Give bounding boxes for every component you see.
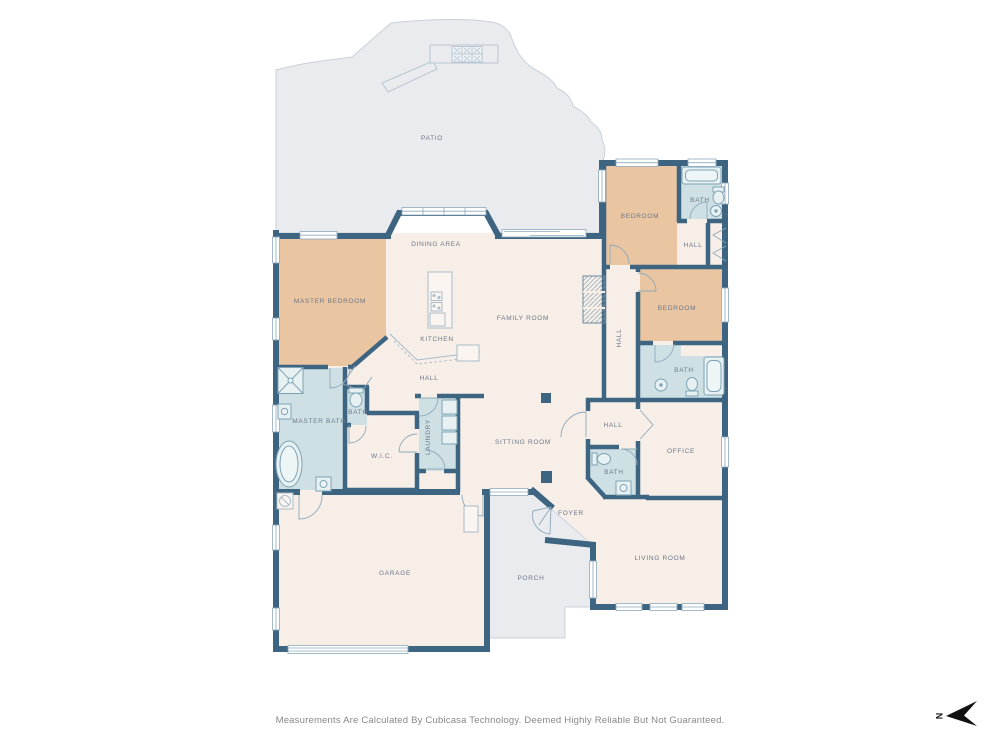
north-arrow-icon: N [934,701,977,726]
label-master-bedroom: MASTER BEDROOM [294,298,366,305]
label-family-room: FAMILY ROOM [497,315,549,322]
kitchen-island [428,272,452,328]
toilet-icon [713,187,724,204]
label-bath-small: BATH [348,409,368,416]
shower-icon [278,368,303,394]
wall-stub [541,393,551,403]
label-patio: PATIO [421,135,443,142]
label-hall-center: HALL [419,375,438,382]
toilet-icon [592,453,611,465]
footer-disclaimer: Measurements Are Calculated By Cubicasa … [276,715,725,726]
room-bedroom2-closet [681,345,723,356]
bathtub-icon [682,167,721,184]
label-bath-foyer: BATH [604,469,624,476]
label-wic: W.I.C. [371,453,393,460]
label-sitting-room: SITTING ROOM [495,439,551,446]
sink-icon [616,481,631,495]
kitchen-sink-icon [430,313,445,326]
label-living-room: LIVING ROOM [634,555,685,562]
stove-icon [431,292,442,301]
label-office: OFFICE [667,448,695,455]
toilet-icon [686,378,698,397]
floorplan-page: PATIO MASTER BEDROOM DINING AREA KITCHEN… [0,0,1000,750]
label-bath-top: BATH [690,197,710,204]
patio-area [276,19,605,233]
label-porch: PORCH [518,575,545,582]
label-bedroom-top: BEDROOM [621,213,660,220]
label-hall-office: HALL [603,422,622,429]
label-dining-area: DINING AREA [411,241,461,248]
water-heater-icon [277,493,293,509]
north-letter: N [934,713,944,720]
label-master-bath: MASTER BATH [292,418,345,425]
wall-stub [541,471,552,483]
label-hall-top: HALL [683,242,702,249]
washer-dryer-icon [442,400,457,444]
floorplan-canvas: PATIO MASTER BEDROOM DINING AREA KITCHEN… [0,0,1000,750]
label-hall-mid: HALL [616,328,623,347]
sink-icon [316,477,331,491]
sink-icon [655,379,667,391]
fireplace-icon [583,276,605,323]
label-garage: GARAGE [379,570,411,577]
label-bath-mid: BATH [674,367,694,374]
label-laundry: LAUNDRY [425,419,432,455]
bathtub-icon [704,357,724,395]
label-bedroom-right: BEDROOM [658,305,697,312]
sink-icon [711,206,722,217]
garage-closet [464,506,478,532]
label-foyer: FOYER [558,510,584,517]
bathtub-icon [276,441,302,487]
toilet-icon [349,388,363,407]
sink-icon [278,404,291,419]
label-kitchen: KITCHEN [420,336,453,343]
